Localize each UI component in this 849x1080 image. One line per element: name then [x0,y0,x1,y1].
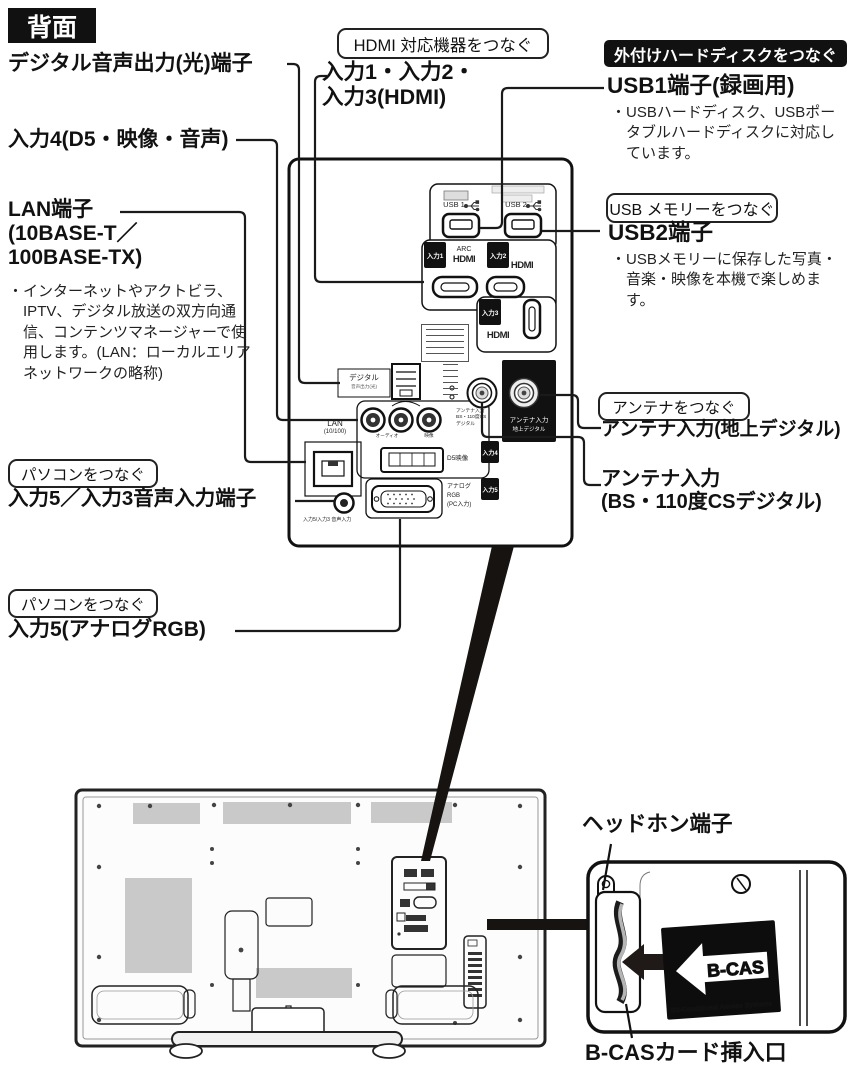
panel-hdmi1-label: HDMI [444,254,484,266]
panel-input3-tab: 入力3 [479,299,501,325]
fine-print-lines [443,364,458,396]
panel-usb2-label: USB 2 [500,200,532,209]
panel-d5-label: D5映像 [447,455,468,463]
panel-hdmi3-label: HDMI [478,330,518,342]
tag-hdmi: HDMI 対応機器をつなぐ [337,28,549,59]
panel-hdmi2-label: HDMI [502,260,542,272]
panel-lan-sub: (10/100) [313,429,357,437]
antenna-bs-line1: アンテナ入力 [601,468,822,491]
usb2-note-text: USBメモリーに保存した写真・音楽・映像を本機で楽しめます。 [626,250,847,311]
panel-audio-in-sub: 入力5/入力3 音声入力 [303,517,393,523]
panel-lan-label: LAN [313,419,357,429]
lan-line1: LAN端子 [8,198,142,222]
panel-antenna-black-label1: アンテナ入力 [503,417,555,425]
bullet: ・ [611,250,626,311]
usb2-note: ・ USBメモリーに保存した写真・音楽・映像を本機で楽しめます。 [611,250,847,311]
pointer-bar [487,919,590,930]
bcas-detail: B-CAS BS-Conditional Access Systems [588,844,845,1038]
panel-video-jack-label: 映像 [417,433,441,439]
label-input5-audio: 入力5／入力3音声入力端子 [8,487,256,511]
lan-note-text: インターネットやアクトビラ、IPTV、デジタル放送の双方向通信、コンテンツマネー… [23,282,260,384]
panel-rgb-line2: RGB [447,492,471,501]
fine-print-lines [426,329,464,355]
panel-input1-tab: 入力1 [424,242,446,268]
tv-rear-view [76,790,545,1058]
label-optical-out: デジタル音声出力(光)端子 [8,52,253,76]
panel-input5-tab: 入力5 [481,478,499,500]
bcas-card: B-CAS BS-Conditional Access Systems [661,920,781,1020]
rca-jacks [362,409,441,432]
label-input4: 入力4(D5・映像・音声) [8,128,229,152]
bcas-logo-text: B-CAS [706,957,764,981]
fine-print-box [421,324,469,362]
usb1-note: ・ USBハードディスク、USBポータブルハードディスクに対応しています。 [611,103,845,164]
label-usb1: USB1端子(録画用) [607,73,795,99]
vga-port [372,486,434,512]
manual-page: B-CAS BS-Conditional Access Systems 背面 デ… [0,0,849,1080]
lan-line2: (10BASE-T／ [8,222,142,246]
label-usb2: USB2端子 [608,220,713,246]
hdmi-inputs-line1: 入力1・入力2・ [322,60,475,85]
hdmi2-port [487,277,524,297]
label-antenna-bs: アンテナ入力 (BS・110度CSデジタル) [601,468,822,514]
tag-pc-2: パソコンをつなぐ [8,589,158,618]
page-badge: 背面 [8,8,96,43]
panel-rgb-line3: (PC入力) [447,501,471,510]
hdmi1-port [433,277,477,297]
usb1-note-text: USBハードディスク、USBポータブルハードディスクに対応しています。 [626,103,845,164]
antenna-terrestrial-connector [510,379,539,408]
label-bcas-slot: B-CASカード挿入口 [585,1040,787,1065]
tag-external-hdd: 外付けハードディスクをつなぐ [604,40,847,67]
panel-usb1-label: USB 1 [438,200,470,209]
tag-usb-memory: USB メモリーをつなぐ [606,193,778,223]
hdmi3-port [524,300,540,338]
label-lan: LAN端子 (10BASE-T／ 100BASE-TX) [8,198,142,270]
panel-audio-jacks-label: オーディオ [358,433,416,439]
ant-bs-s3: デジタル [456,422,502,428]
lan-note: ・ インターネットやアクトビラ、IPTV、デジタル放送の双方向通信、コンテンツマ… [8,282,260,384]
hdmi-inputs-line2: 入力3(HDMI) [322,85,475,110]
bcas-card-slot [596,892,640,1012]
panel-rgb-line1: アナログ [447,483,471,492]
bullet: ・ [611,103,626,164]
antenna-bs-line2: (BS・110度CSデジタル) [601,491,822,514]
panel-digital-sub: 音声出力(光) [339,384,389,390]
lan-port [314,452,352,486]
panel-digital-label: デジタル [339,373,389,382]
label-input5-rgb: 入力5(アナログRGB) [8,618,206,642]
tag-antenna: アンテナをつなぐ [598,392,750,421]
audio-minijack [335,494,354,513]
label-antenna-terrestrial: アンテナ入力(地上デジタル) [601,419,841,441]
label-headphone: ヘッドホン端子 [582,812,733,837]
panel-input4-tab: 入力4 [481,441,499,463]
lan-line3: 100BASE-TX) [8,246,142,270]
panel-antenna-black-label2: 地上デジタル [503,427,555,434]
panel-rgb-label: アナログ RGB (PC入力) [447,483,471,510]
label-hdmi-inputs: 入力1・入力2・ 入力3(HDMI) [322,60,475,109]
tag-pc-1: パソコンをつなぐ [8,459,158,488]
d-terminal-port [381,448,443,472]
bullet: ・ [8,282,23,384]
panel-antenna-bs-small: アンテナ入力 BS・110度CS デジタル [456,409,502,428]
